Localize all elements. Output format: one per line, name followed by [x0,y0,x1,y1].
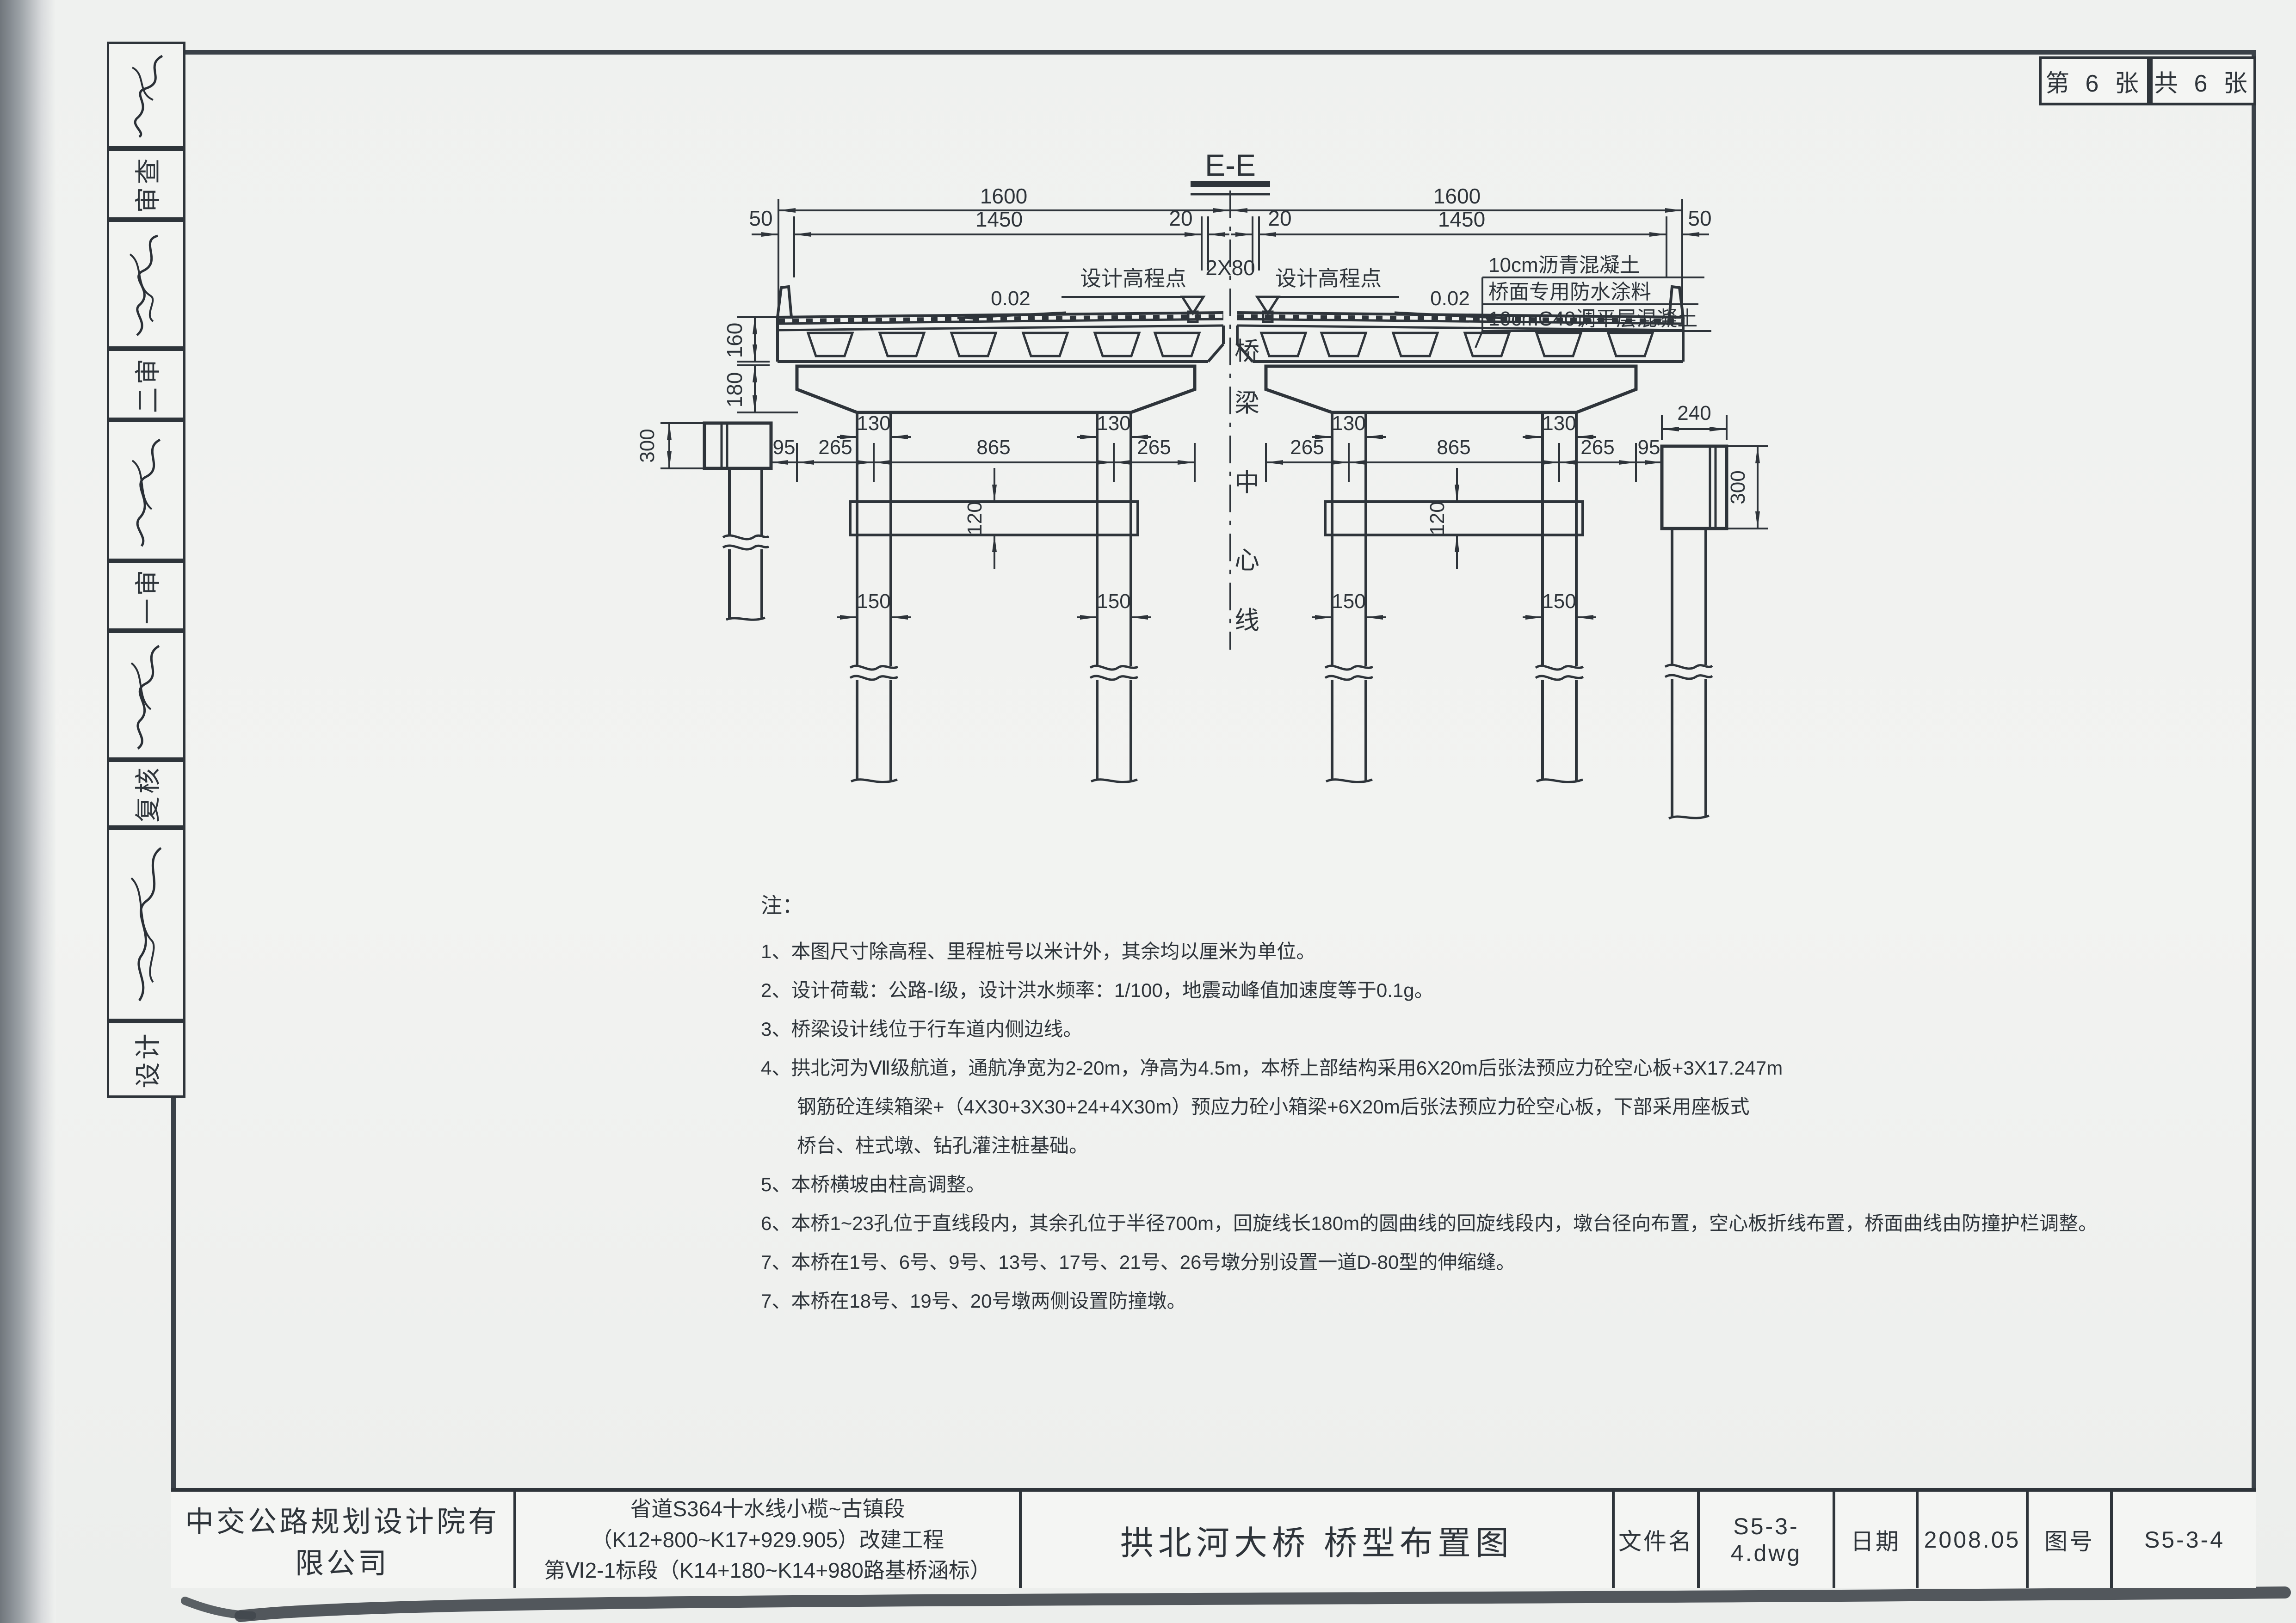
dim-label-130: 130 [857,412,890,435]
dim-label-95-right: 95 [1638,436,1660,459]
dim-label-150: 150 [1332,590,1365,613]
left-barrier [778,287,791,317]
dim-label-130: 130 [1332,412,1365,435]
left-pier-cap [797,366,1195,412]
date-label: 日期 [1851,1523,1901,1556]
dim-label-20-right: 20 [1268,206,1291,230]
number-value-cell: S5-3-4 [2113,1492,2256,1588]
title-block: 中交公路规划设计院有限公司 省道S364十水线小榄~古镇段（K12+800~K1… [171,1488,2256,1588]
right-abutment [1662,446,1727,529]
centerline-char: 心 [1234,547,1259,574]
dim-label-50-right: 50 [1688,206,1711,230]
dim-label-50-left: 50 [749,206,772,230]
dim-label-130: 130 [1542,412,1576,435]
dim-label-265: 265 [818,436,852,459]
dim-label-865: 865 [1437,436,1470,459]
dim-label-160: 160 [722,323,747,358]
right-pier-cap [1266,366,1636,412]
file-value-cell: S5-3-4.dwg [1700,1492,1835,1588]
note-line-4c: 桥台、柱式墩、钻孔灌注桩基础。 [761,1136,2102,1156]
dim-label-1600-left: 1600 [980,184,1027,208]
section-title: E-E [1205,148,1256,182]
drawing-title-cell: 拱北河大桥 桥型布置图 [1022,1492,1615,1588]
slope-label-right: 0.02 [1430,287,1470,310]
dim-label-265: 265 [1137,436,1171,459]
date-label-cell: 日期 [1835,1492,1919,1588]
dim-label-180: 180 [722,372,747,408]
right-tie-beam [1325,502,1583,535]
file-label-cell: 文件名 [1615,1492,1700,1588]
dim-label-240: 240 [1677,402,1711,424]
drawing-sheet: 第 6 张 共 6 张 审查 二审 一审 复核 设计 [0,0,2296,1623]
design-point-label-left: 设计高程点 [1080,266,1186,290]
note-line-6: 6、本桥1~23孔位于直线段内，其余孔位于半径700m，回旋线长180m的圆曲线… [761,1214,2102,1233]
notes-header: 注： [761,895,2102,916]
project-line-1: 省道S364十水线小榄~古镇段（K12+800~K17+929.905）改建工程 [516,1494,1019,1555]
dim-label-1600-right: 1600 [1433,184,1481,208]
file-label: 文件名 [1618,1523,1693,1556]
note-line-1: 1、本图尺寸除高程、里程桩号以米计外，其余均以厘米为单位。 [761,942,2102,961]
pavement-layer-2: 桥面专用防水涂料 [1488,281,1651,303]
design-point-label-right: 设计高程点 [1275,266,1382,290]
note-line-8: 7、本桥在18号、19号、20号墩两侧设置防撞墩。 [761,1291,2102,1311]
dim-label-150: 150 [1097,590,1130,613]
centerline-char: 桥 [1234,338,1259,365]
number-label-cell: 图号 [2029,1492,2113,1588]
project-line-2: 第Ⅵ2-1标段（K14+180~K14+980路基桥涵标） [544,1555,991,1586]
center-gap-label: 2X80 [1205,256,1255,280]
dim-label-300-right: 300 [1727,470,1749,504]
date-value-cell: 2008.05 [1919,1492,2029,1588]
dim-label-120-left: 120 [963,501,986,535]
dim-label-20-left: 20 [1169,206,1192,230]
centerline-char: 线 [1234,607,1259,634]
centerline-char: 梁 [1234,389,1259,417]
file-value: S5-3-4.dwg [1700,1513,1833,1567]
note-line-3: 3、桥梁设计线位于行车道内侧边线。 [761,1020,2102,1039]
dim-label-1450-right: 1450 [1438,207,1485,231]
left-tie-beam [850,502,1138,535]
project-cell: 省道S364十水线小榄~古镇段（K12+800~K17+929.905）改建工程… [516,1492,1022,1588]
number-value: S5-3-4 [2144,1526,2225,1553]
dim-label-265: 265 [1290,436,1324,459]
page-curl-shadow [241,1592,2285,1616]
notes-block: 注： 1、本图尺寸除高程、里程桩号以米计外，其余均以厘米为单位。 2、设计荷载：… [761,895,2102,1330]
drawing-title: 拱北河大桥 桥型布置图 [1120,1516,1513,1564]
left-abutment [704,423,771,468]
dim-label-150: 150 [857,590,890,613]
dim-label-1450-left: 1450 [975,207,1023,231]
note-line-4b: 钢筋砼连续箱梁+（4X30+3X30+24+4X30m）预应力砼小箱梁+6X20… [761,1097,2102,1117]
dim-label-150: 150 [1542,590,1576,613]
pavement-layer-1: 10cm沥青混凝土 [1488,254,1640,277]
dim-label-130: 130 [1097,412,1130,435]
slope-label-left: 0.02 [991,287,1031,310]
pavement-layer-3: 10cmC40调平层混凝土 [1488,307,1697,330]
centerline-char: 中 [1234,469,1259,497]
note-line-4: 4、拱北河为Ⅶ级航道，通航净宽为2-20m，净高为4.5m，本桥上部结构采用6X… [761,1058,2102,1078]
dim-label-120-right: 120 [1426,501,1449,535]
dim-label-865: 865 [976,436,1010,459]
bridge-section-drawing: E-E 1600 1600 50 50 1450 1450 20 20 2X80… [0,0,2296,1623]
number-label: 图号 [2044,1523,2094,1556]
page-curl-shadow-left [185,1601,252,1616]
note-line-7: 7、本桥在1号、6号、9号、13号、17号、21号、26号墩分别设置一道D-80… [761,1253,2102,1272]
dim-label-265: 265 [1580,436,1614,459]
dim-label-300-left: 300 [636,429,659,462]
date-value: 2008.05 [1924,1526,2021,1553]
note-line-2: 2、设计荷载：公路-Ⅰ级，设计洪水频率：1/100，地震动峰值加速度等于0.1g… [761,981,2102,1000]
note-line-5: 5、本桥横坡由柱高调整。 [761,1175,2102,1194]
dim-label-95-left: 95 [773,436,796,459]
company-cell: 中交公路规划设计院有限公司 [171,1492,516,1588]
company-name: 中交公路规划设计院有限公司 [171,1498,513,1581]
